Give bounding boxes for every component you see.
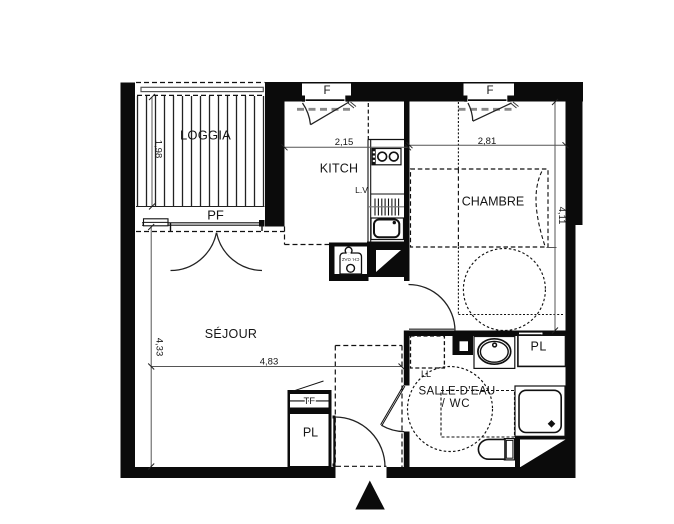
svg-text:SÉJOUR: SÉJOUR — [205, 326, 258, 341]
svg-text:PL: PL — [531, 340, 547, 354]
svg-text:PF: PF — [207, 208, 224, 223]
svg-text:2,81: 2,81 — [478, 136, 497, 147]
svg-text:/ WC: / WC — [442, 398, 471, 410]
svg-text:LL: LL — [421, 369, 431, 379]
svg-text:F: F — [486, 85, 493, 97]
svg-text:1,98: 1,98 — [152, 140, 163, 159]
svg-text:PL: PL — [303, 426, 318, 440]
svg-text:2,15: 2,15 — [335, 137, 354, 148]
svg-text:4,11: 4,11 — [556, 207, 567, 225]
svg-text:TF: TF — [303, 396, 315, 407]
svg-text:4,33: 4,33 — [154, 338, 165, 357]
svg-text:CH. GAZ: CH. GAZ — [342, 257, 360, 262]
svg-text:SALLE D'EAU: SALLE D'EAU — [419, 385, 496, 397]
svg-text:KITCH: KITCH — [320, 162, 359, 176]
svg-text:CHAMBRE: CHAMBRE — [462, 195, 525, 209]
svg-text:L.V: L.V — [355, 185, 368, 195]
svg-text:4,83: 4,83 — [260, 356, 279, 367]
svg-text:F: F — [323, 85, 330, 97]
svg-text:LOGGIA: LOGGIA — [180, 128, 231, 143]
